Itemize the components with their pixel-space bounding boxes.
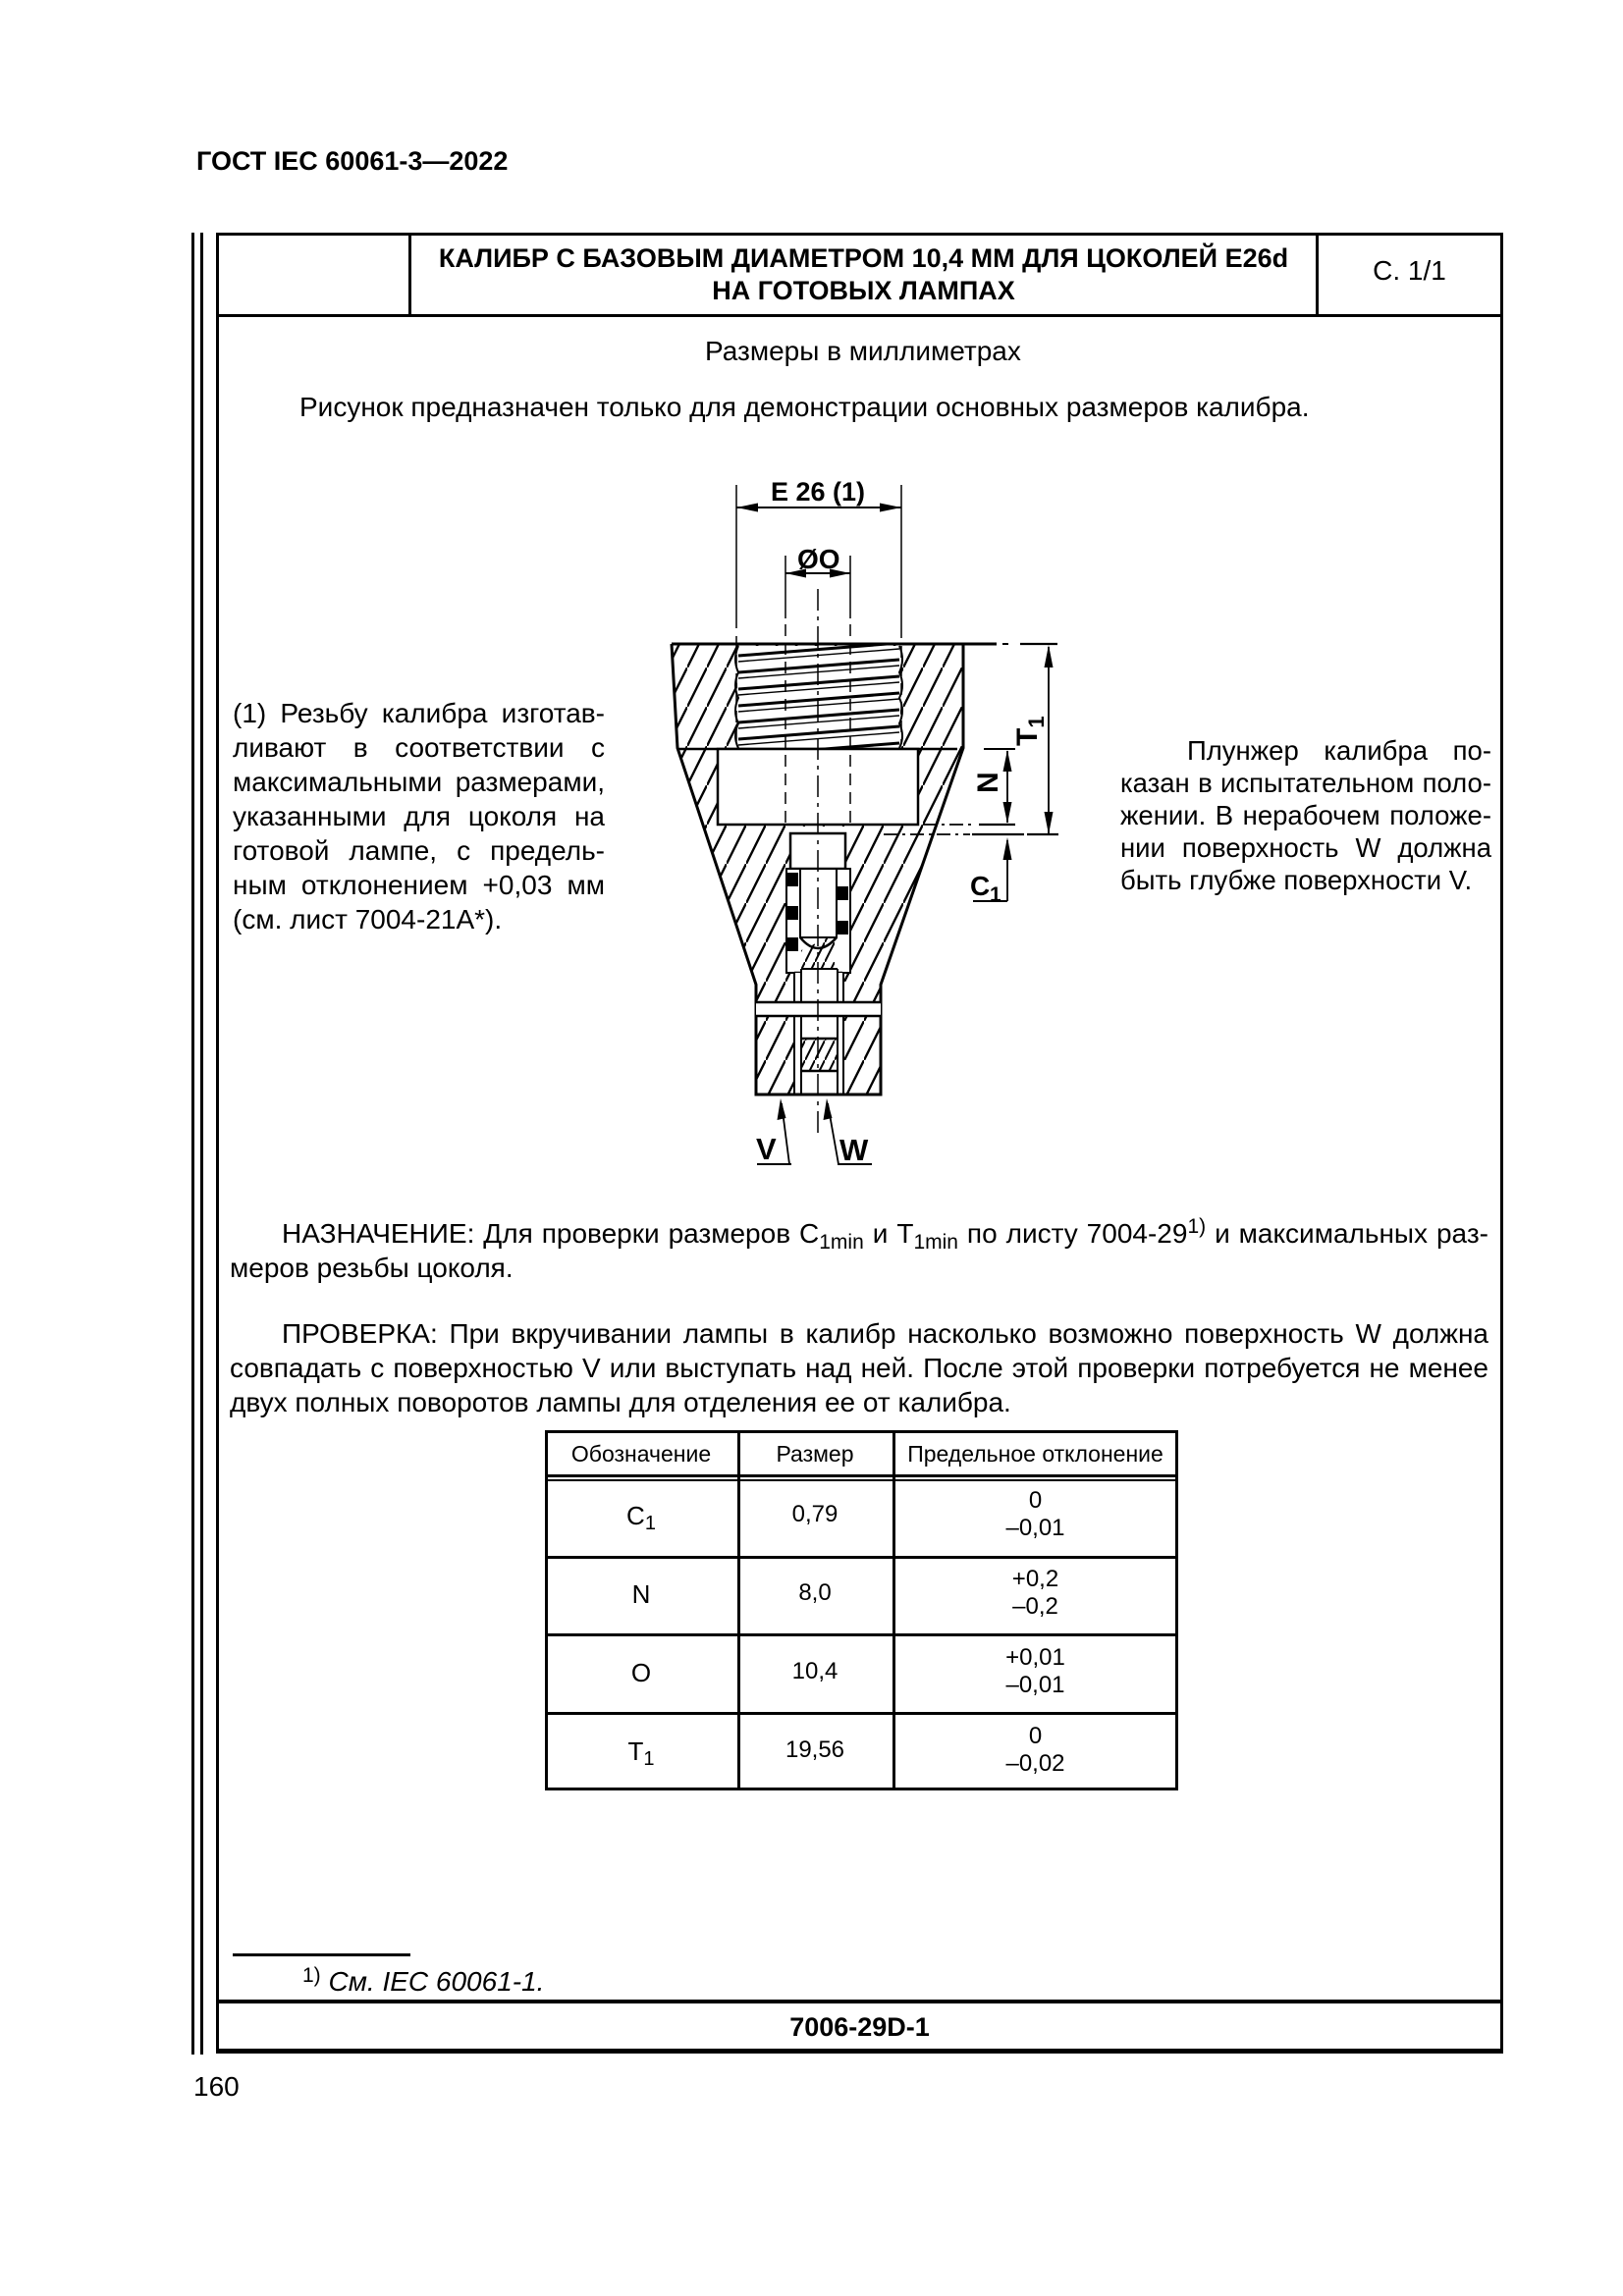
svg-text:W: W: [839, 1133, 869, 1167]
svg-text:1: 1: [990, 883, 1001, 906]
svg-text:T1: T1: [1011, 716, 1049, 746]
svg-text:C: C: [970, 871, 990, 901]
svg-text:N: N: [972, 772, 1004, 793]
svg-text:E 26 (1): E 26 (1): [771, 477, 865, 507]
svg-text:V: V: [756, 1132, 777, 1166]
